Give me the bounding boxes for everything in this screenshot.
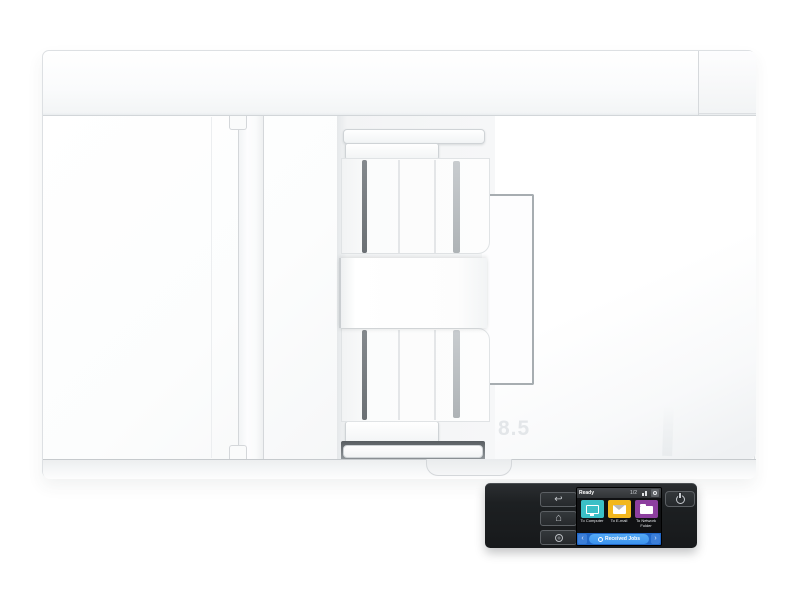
- jobs-bar-label: Received Jobs: [605, 536, 640, 542]
- guide-rail-lower: [453, 330, 460, 418]
- home-button[interactable]: ⌂: [540, 511, 577, 526]
- control-panel: ↩ ⌂ Ready 1/2: [485, 483, 697, 548]
- tile-label: To E-mail: [611, 519, 628, 524]
- help-ring-icon: [555, 534, 563, 542]
- power-button[interactable]: [665, 491, 695, 507]
- settings-gear-icon[interactable]: [651, 489, 659, 497]
- status-bar: Ready 1/2: [577, 488, 661, 498]
- computer-monitor-icon: [586, 505, 599, 514]
- tile-to-network-folder[interactable]: To Network Folder: [634, 500, 658, 533]
- product-photo-stage: 8.5 ↩ ⌂ Ready 1/2: [0, 0, 800, 600]
- guide-slot-upper: [362, 160, 367, 253]
- adf-center-slider[interactable]: [339, 258, 487, 328]
- lid-hinge-strip: [238, 116, 264, 459]
- page-indicator: 1/2: [630, 490, 637, 496]
- guide-slot-lower: [362, 330, 367, 420]
- network-signal-icon: [642, 490, 647, 496]
- rail-separator: [434, 160, 436, 253]
- paper-guide-front[interactable]: [343, 445, 483, 458]
- flatbed-lid-right: [495, 116, 756, 459]
- page-right-button[interactable]: ›: [651, 534, 660, 544]
- hinge-tab-bottom: [229, 445, 247, 459]
- jobs-badge-icon: [598, 537, 603, 542]
- touchscreen[interactable]: Ready 1/2 To Computer: [576, 487, 662, 546]
- lid-lift-tab[interactable]: [426, 459, 512, 476]
- tile-to-email[interactable]: To E-mail: [607, 500, 631, 533]
- hinge-tab-top: [229, 116, 247, 130]
- tile-to-computer[interactable]: To Computer: [580, 500, 604, 533]
- network-folder-icon: [640, 506, 653, 514]
- lid-shading: [662, 406, 674, 456]
- back-arrow-icon: ↩: [554, 495, 562, 505]
- jobs-bar: ‹ Received Jobs ›: [577, 533, 661, 545]
- paper-size-marking: 8.5: [498, 417, 530, 441]
- tile-label: To Computer: [581, 519, 604, 524]
- rail-separator: [398, 160, 400, 253]
- help-button[interactable]: [540, 530, 577, 545]
- envelope-icon: [613, 505, 626, 514]
- scanner-front-edge: [43, 459, 756, 479]
- rail-separator: [398, 330, 400, 420]
- back-button[interactable]: ↩: [540, 492, 577, 507]
- tile-label: To Network Folder: [634, 519, 658, 528]
- scanner-body: 8.5: [42, 50, 755, 478]
- status-text: Ready: [579, 490, 594, 496]
- received-jobs-button[interactable]: Received Jobs: [589, 534, 649, 544]
- power-icon: [676, 495, 685, 504]
- lid-seam: [211, 117, 212, 458]
- flatbed-lid-left: [43, 116, 338, 459]
- scanner-back-strip: [43, 51, 756, 116]
- page-left-button[interactable]: ‹: [578, 534, 587, 544]
- rail-separator: [434, 330, 436, 420]
- home-icon: ⌂: [555, 513, 562, 524]
- back-strip-right-corner: [699, 51, 756, 114]
- guide-rail-upper: [453, 161, 460, 253]
- home-screen-tiles: To Computer To E-mail To Network Folder: [577, 498, 661, 533]
- paper-guide-rear[interactable]: [343, 129, 485, 144]
